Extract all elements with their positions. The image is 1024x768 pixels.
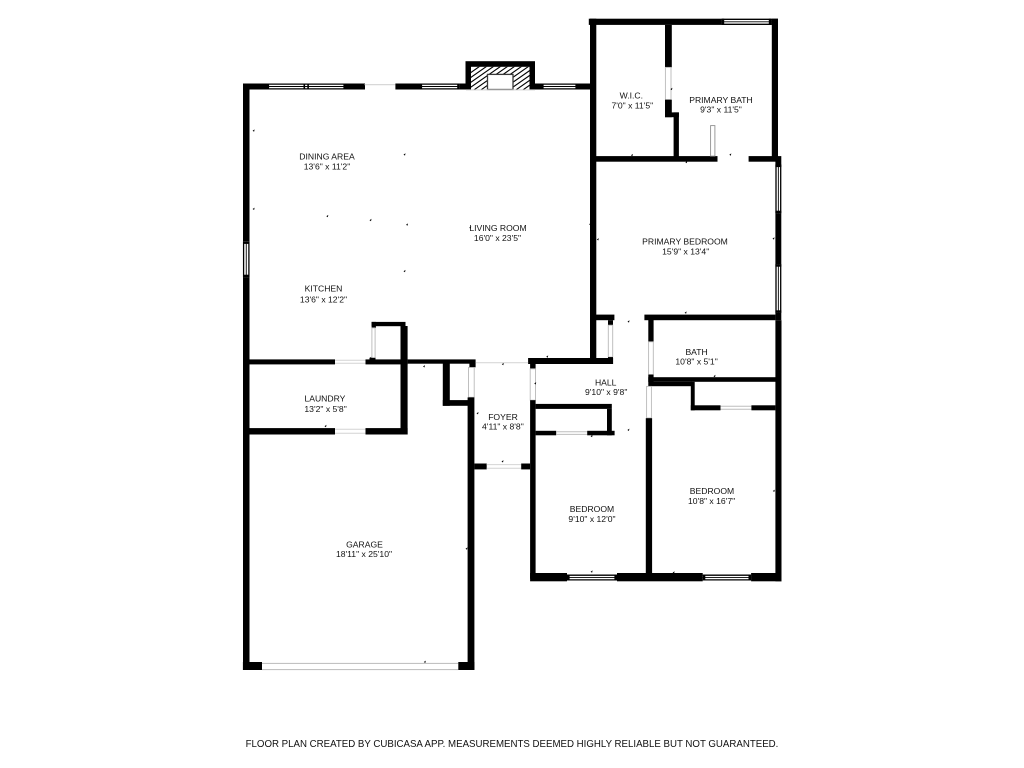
svg-text:BEDROOM: BEDROOM — [570, 504, 614, 514]
svg-text:GARAGE: GARAGE — [346, 539, 383, 549]
svg-text:15'9" x 13'4": 15'9" x 13'4" — [662, 247, 709, 257]
svg-text:LAUNDRY: LAUNDRY — [304, 394, 345, 404]
svg-text:FLOOR PLAN CREATED BY CUBICASA: FLOOR PLAN CREATED BY CUBICASA APP. MEAS… — [246, 739, 779, 750]
svg-text:9'3" x 11'5": 9'3" x 11'5" — [700, 104, 742, 114]
svg-text:7'0" x 11'5": 7'0" x 11'5" — [611, 101, 653, 111]
svg-text:9'10" x 9'8": 9'10" x 9'8" — [585, 387, 627, 397]
svg-text:18'11" x 25'10": 18'11" x 25'10" — [336, 549, 392, 559]
svg-text:HALL: HALL — [595, 378, 617, 388]
svg-text:10'8" x 5'1": 10'8" x 5'1" — [675, 357, 717, 367]
svg-text:13'6" x 12'2": 13'6" x 12'2" — [300, 294, 347, 304]
svg-text:W.I.C.: W.I.C. — [620, 90, 643, 100]
svg-text:4'11" x 8'8": 4'11" x 8'8" — [482, 422, 524, 432]
svg-text:10'8" x 16'7": 10'8" x 16'7" — [688, 496, 735, 506]
svg-text:13'6" x 11'2": 13'6" x 11'2" — [304, 161, 351, 171]
svg-text:LIVING ROOM: LIVING ROOM — [469, 223, 526, 233]
svg-text:BEDROOM: BEDROOM — [690, 486, 734, 496]
svg-text:DINING AREA: DINING AREA — [299, 151, 355, 161]
svg-text:PRIMARY BEDROOM: PRIMARY BEDROOM — [642, 237, 728, 247]
svg-text:16'0" x 23'5": 16'0" x 23'5" — [474, 233, 521, 243]
svg-text:KITCHEN: KITCHEN — [305, 284, 343, 294]
svg-text:13'2" x 5'8": 13'2" x 5'8" — [304, 404, 346, 414]
svg-text:BATH: BATH — [685, 347, 707, 357]
svg-text:9'10" x 12'0": 9'10" x 12'0" — [568, 514, 615, 524]
svg-text:FOYER: FOYER — [488, 412, 518, 422]
